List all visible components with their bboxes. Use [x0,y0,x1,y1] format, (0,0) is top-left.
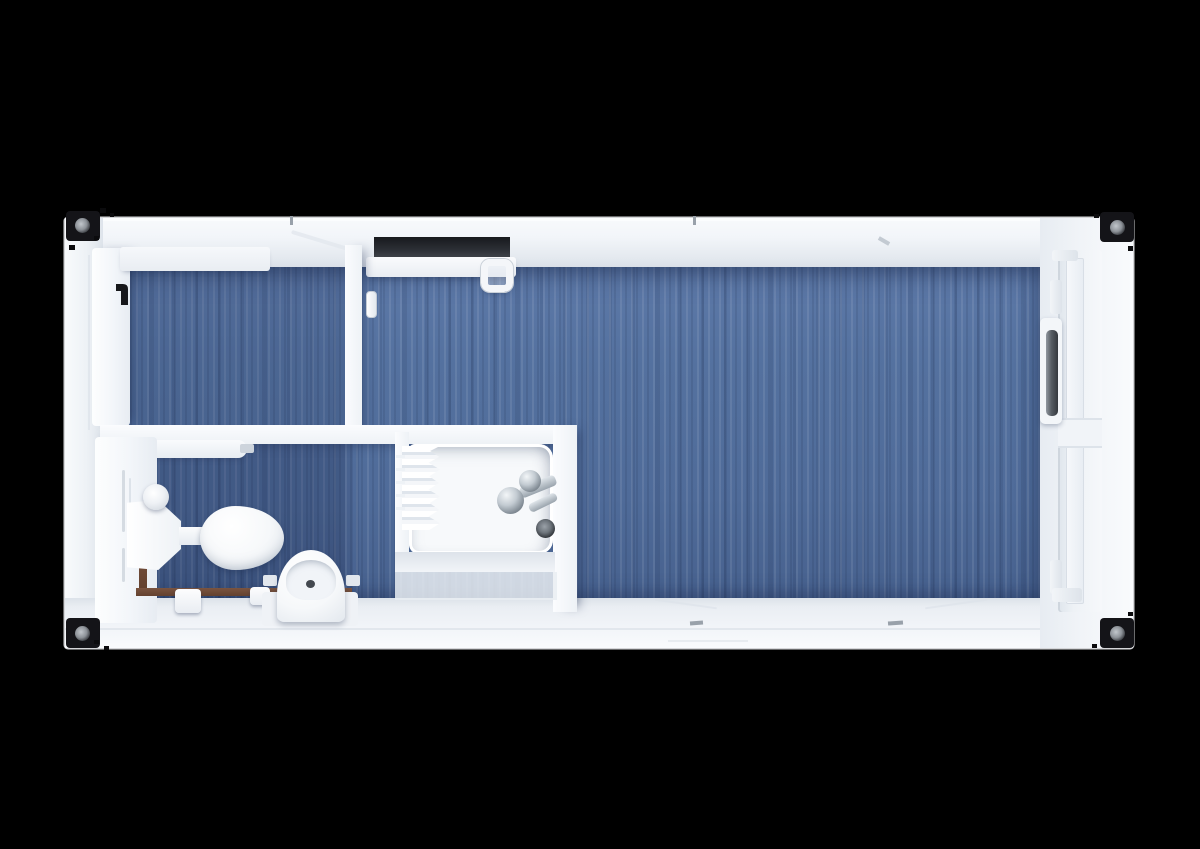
left-wall-seam [88,255,90,430]
washbasin-bracket [346,575,360,586]
casting-noise [1128,612,1133,616]
curtain-hook [396,507,405,510]
toilet-flush-button [143,484,169,510]
partition-wall-vertical [345,245,362,437]
entry-shelf [120,247,270,271]
entry-door-panel [92,248,130,426]
pipe-clip [175,589,201,613]
casting-hole [1110,626,1125,641]
curtain-hook [396,481,405,484]
casting-noise [104,646,109,650]
end-door-top-tab [1052,250,1078,261]
washbasin-bracket [263,575,277,586]
bottom-wall-seam [65,628,1133,630]
casting-noise [100,208,106,213]
interior-door-handle [366,291,377,318]
casting-noise [1094,214,1099,218]
casting-noise [1092,644,1097,648]
shower-mixer-knob [519,470,541,492]
end-door-transom [1058,420,1102,446]
casting-noise [94,640,99,644]
bathroom-door-leaf [143,440,247,458]
curtain-hook [396,494,405,497]
shower-front-floor [395,572,557,600]
casting-hole [75,218,90,233]
curtain-hook [396,455,405,458]
wall-louver-slit [122,470,125,532]
wall-louver-slit [122,548,125,582]
casting-noise [110,213,114,217]
end-door-handle [1046,330,1058,416]
casting-hole [1110,220,1125,235]
curtain-hook [396,468,405,471]
wall-tick [290,216,293,225]
render-canvas [0,0,1200,849]
wall-tick [693,216,696,225]
entry-door-handle-icon [112,281,134,307]
end-door-sill-tab [1052,588,1082,602]
top-window-handle [481,259,513,292]
bottom-wall [65,598,1133,648]
corner-casting-top-right [1100,212,1134,242]
shower-tray-lip [395,552,555,572]
casting-noise [94,236,99,240]
shower-drain [536,519,555,538]
shower-mixer-knob [497,487,524,514]
casting-noise [1128,246,1133,251]
corner-casting-bottom-right [1100,618,1134,648]
door-leaf-bracket [240,444,254,453]
top-window-opening [374,237,510,259]
casting-noise [69,245,75,250]
end-door-hinge [1050,280,1062,314]
casting-hole [75,626,90,641]
wall-seam [668,640,748,642]
basin-tap-dot [306,580,315,588]
